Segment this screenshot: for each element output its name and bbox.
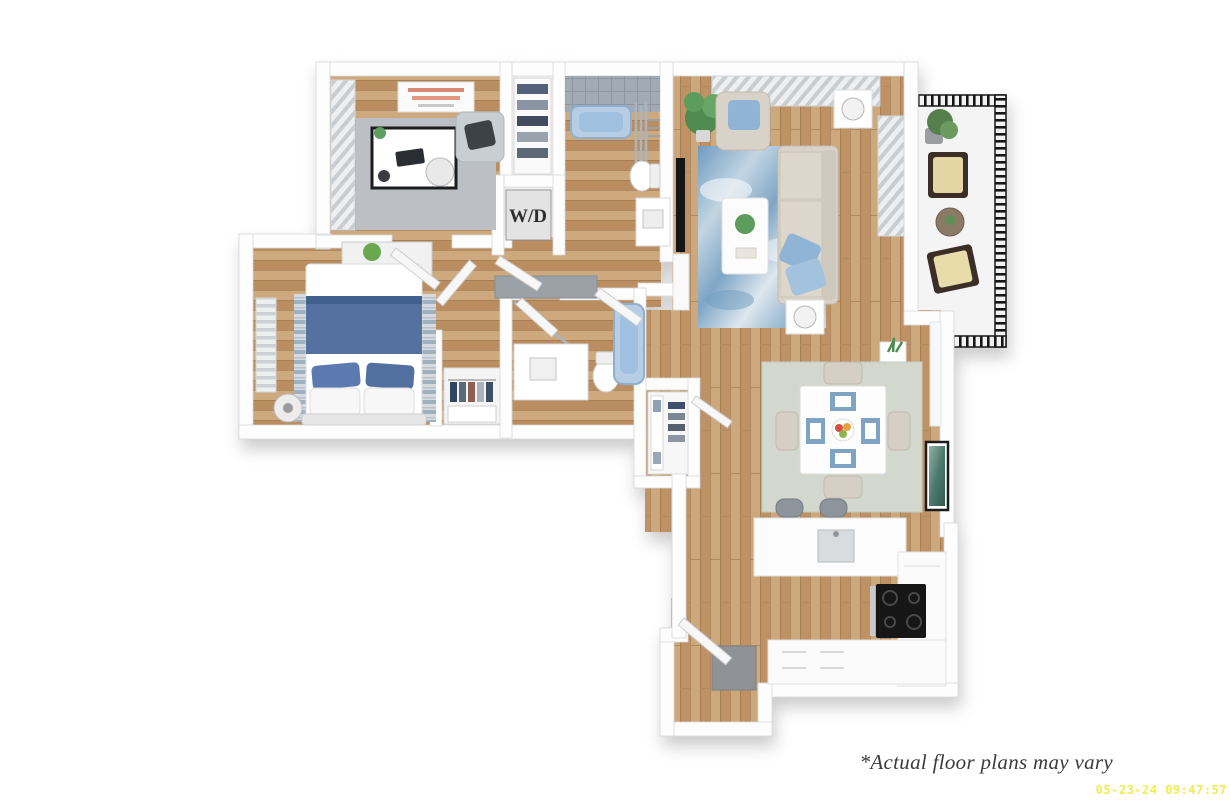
wall-closet2-left [634,378,646,488]
bed-pillow-blue-2 [365,362,415,389]
office-window-blinds [331,80,355,230]
wall-top [316,62,918,76]
wall-entry-left [660,628,674,736]
wall-entry-bottom [660,722,772,736]
bedroom-closet [444,368,500,424]
floor-plan-page: W/D [0,0,1231,807]
wall-office-left [316,62,330,249]
bed-pillow-white-2 [364,388,414,416]
bed-blanket [306,296,422,354]
disclaimer-text: *Actual floor plans may vary [860,750,1113,775]
desk-plant [374,127,386,139]
coffee-table-plant [735,214,755,234]
apartment: W/D [239,62,1006,736]
table-lamp-2 [794,306,816,328]
fruit-bowl [832,419,854,441]
bar-stool-1 [776,499,803,517]
wall-living-right [904,62,918,325]
balcony-railing-top [918,95,1006,106]
closet-chest [448,406,496,422]
wd-label: W/D [509,206,547,227]
bath2-vanity [514,344,588,400]
office-armchair [456,112,504,162]
nightstand [274,394,302,422]
wall-bath2-left [500,288,512,438]
balcony-chair-1 [928,152,968,198]
dining-window [930,322,941,426]
office-chair [426,158,454,186]
hall-runner-rug [495,276,597,298]
balcony-railing-right [995,95,1006,347]
wall-bedroom-left [239,234,253,439]
tv [676,158,685,252]
headboard [302,414,426,425]
faucet [833,531,839,537]
linen-closet [514,78,551,174]
kitchen-island [754,518,906,576]
timestamp-watermark: 05-23-24 09:47:57 [1096,783,1227,797]
dining-chair-right [888,412,910,450]
balcony-side-table [936,208,964,236]
balcony [918,95,1006,347]
wall-bottom-left [239,425,646,439]
wall-wd-right [553,175,565,255]
living-window-blinds-right [878,116,904,236]
washer-dryer-closet: W/D [506,190,551,240]
bedroom-window-blinds [256,298,276,392]
bathtub-basin [579,112,623,132]
dining-wall-art [926,442,948,510]
wall-closet2-bottom [634,476,700,488]
wall-linen-closet-right [553,62,565,182]
bed [302,264,426,425]
side-table-top [834,90,872,128]
bed-pillow-white-1 [310,388,360,416]
wall-kitchen-left [672,466,686,638]
office-wall-art [398,82,474,112]
dining-table [800,386,886,474]
coffee-table [722,198,768,274]
bar-stool-2 [820,499,847,517]
floor-plan-render: W/D [0,0,1231,807]
bathroom-vanity [636,198,670,246]
living-armchair [716,92,770,150]
toilet [630,161,660,191]
table-lamp-1 [842,98,864,120]
desk-lamp [378,170,390,182]
oven-handle [870,586,875,636]
side-table-bottom [786,300,824,334]
dresser-plant [363,243,381,261]
nightstand-lamp [283,403,293,413]
stove [870,584,926,638]
tv-console [673,254,689,310]
wall-closet2-right [688,378,700,488]
dining-chair-top [824,362,862,384]
sofa [777,146,838,304]
kitchen-counter-bottom [768,640,946,684]
walk-in-closet [648,392,688,474]
corner-plant-shelf [880,338,906,362]
dining-chair-bottom [824,476,862,498]
bed-pillow-blue-1 [311,362,361,390]
hallway [495,276,597,298]
dining-chair-left [776,412,798,450]
